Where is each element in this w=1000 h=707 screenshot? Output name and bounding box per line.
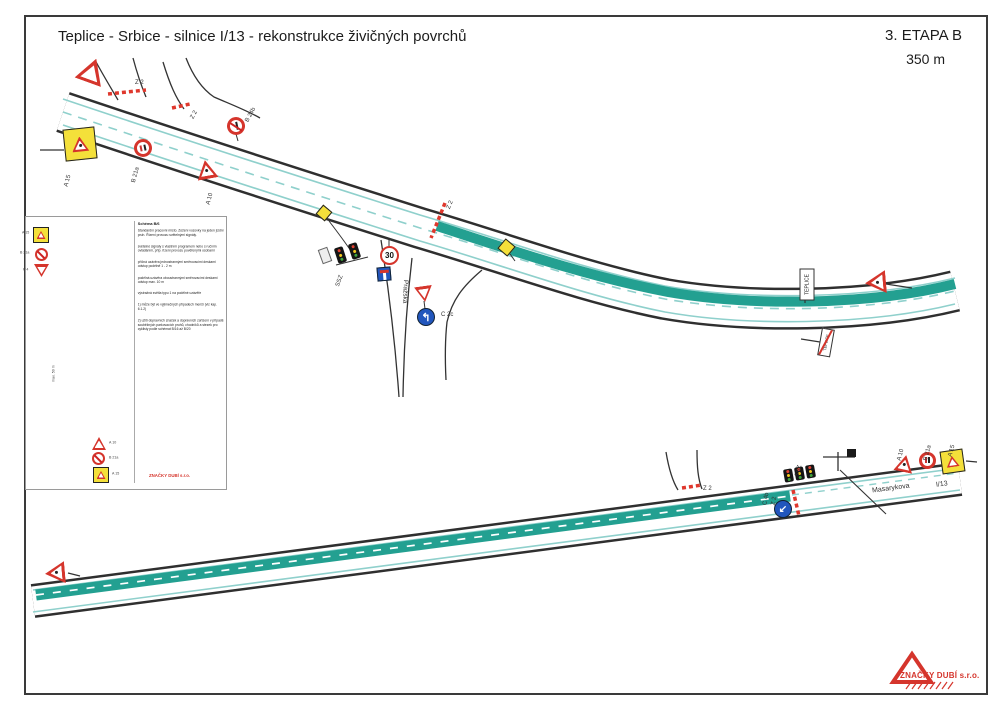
legend-sign-code: A 10 [109, 441, 116, 445]
legend-intro: Standardní pracovní místo. Zúžení vozovk… [138, 229, 226, 238]
roadworks-a15-board-sign [62, 126, 97, 161]
prazska-edge-east [403, 258, 412, 397]
sign-pole [68, 573, 80, 576]
prazska-ramp-edge [445, 270, 482, 380]
legend-footnote: 2) užití dopravních značek a dopravních … [138, 319, 226, 332]
legend-box: Schéma B/6 Standardní pracovní místo. Zú… [25, 216, 227, 490]
mandatory-turn-left-sign: ↰ [417, 308, 435, 326]
dead-end-bar [380, 270, 389, 274]
direction-sign-text: TEPLICE [804, 274, 810, 295]
barrier-code-label: Z 2 [703, 486, 712, 492]
legend-sign-code: B 21a [109, 456, 118, 460]
roadworks-icon [71, 136, 89, 153]
legend-note: příčná uzávěra jednostrannými směrovacím… [138, 261, 226, 270]
side-road-2-edge [186, 58, 260, 118]
z2-barrier [172, 104, 190, 108]
bottom-side-road-edge [666, 452, 678, 490]
sign-code-label: C 2c [441, 312, 453, 318]
legend-note: podélná uzávěra oboustrannými směrovacím… [138, 276, 226, 285]
company-logo-text: ZNAČKY DUBÍ s.r.o. [900, 671, 979, 680]
legend-no-overtaking-sign [35, 248, 48, 261]
side-road-2-edge [163, 62, 184, 109]
speed-limit-value: 30 [382, 248, 397, 263]
barrier-code-label: Z 2 [135, 80, 144, 86]
route-number-label: I/13 [936, 480, 949, 488]
legend-sign-code: B 21a [20, 251, 29, 255]
z2-barrier [682, 485, 702, 488]
plan-sheet: Teplice - Srbice - silnice I/13 - rekons… [0, 0, 1000, 707]
legend-sign-code: P 4 [23, 268, 28, 272]
legend-no-overtaking-sign [92, 452, 105, 465]
roadworks-icon [37, 231, 46, 239]
sign-pole [801, 339, 820, 342]
legend-note: výstražná světla typu 1 na podélné uzávě… [138, 292, 226, 296]
legend-distance-note: max. 50 m [52, 365, 56, 382]
legend-text-panel: Schéma B/6 Standardní pracovní místo. Zú… [134, 221, 225, 483]
sign-pole [966, 461, 977, 462]
legend-sign-code: A 15 [112, 472, 119, 476]
bottom-road-edge-line-lower [33, 490, 960, 612]
roadworks-icon [97, 471, 106, 479]
legend-a15-board-sign [33, 227, 49, 243]
speed-limit-30-sign: 30 [380, 246, 399, 265]
dead-end-street-sign [376, 266, 391, 281]
legend-company-logo-text: ZNAČKY DUBÍ s.r.o. [149, 474, 190, 478]
legend-sign-code: A 15 [22, 231, 29, 235]
legend-heading: Schéma B/6 [138, 222, 226, 226]
signal-mast-head [847, 449, 856, 457]
direction-sign-teplice: TEPLICE [800, 269, 815, 301]
legend-note: světelné signály s vlastním programem ne… [138, 245, 226, 254]
legend-footnote: 1) může být ve výjimečných případech men… [138, 304, 226, 313]
legend-a15-board-sign [93, 467, 109, 483]
bottom-side-road-edge [697, 450, 702, 489]
street-name-label: Pražská [401, 280, 408, 304]
